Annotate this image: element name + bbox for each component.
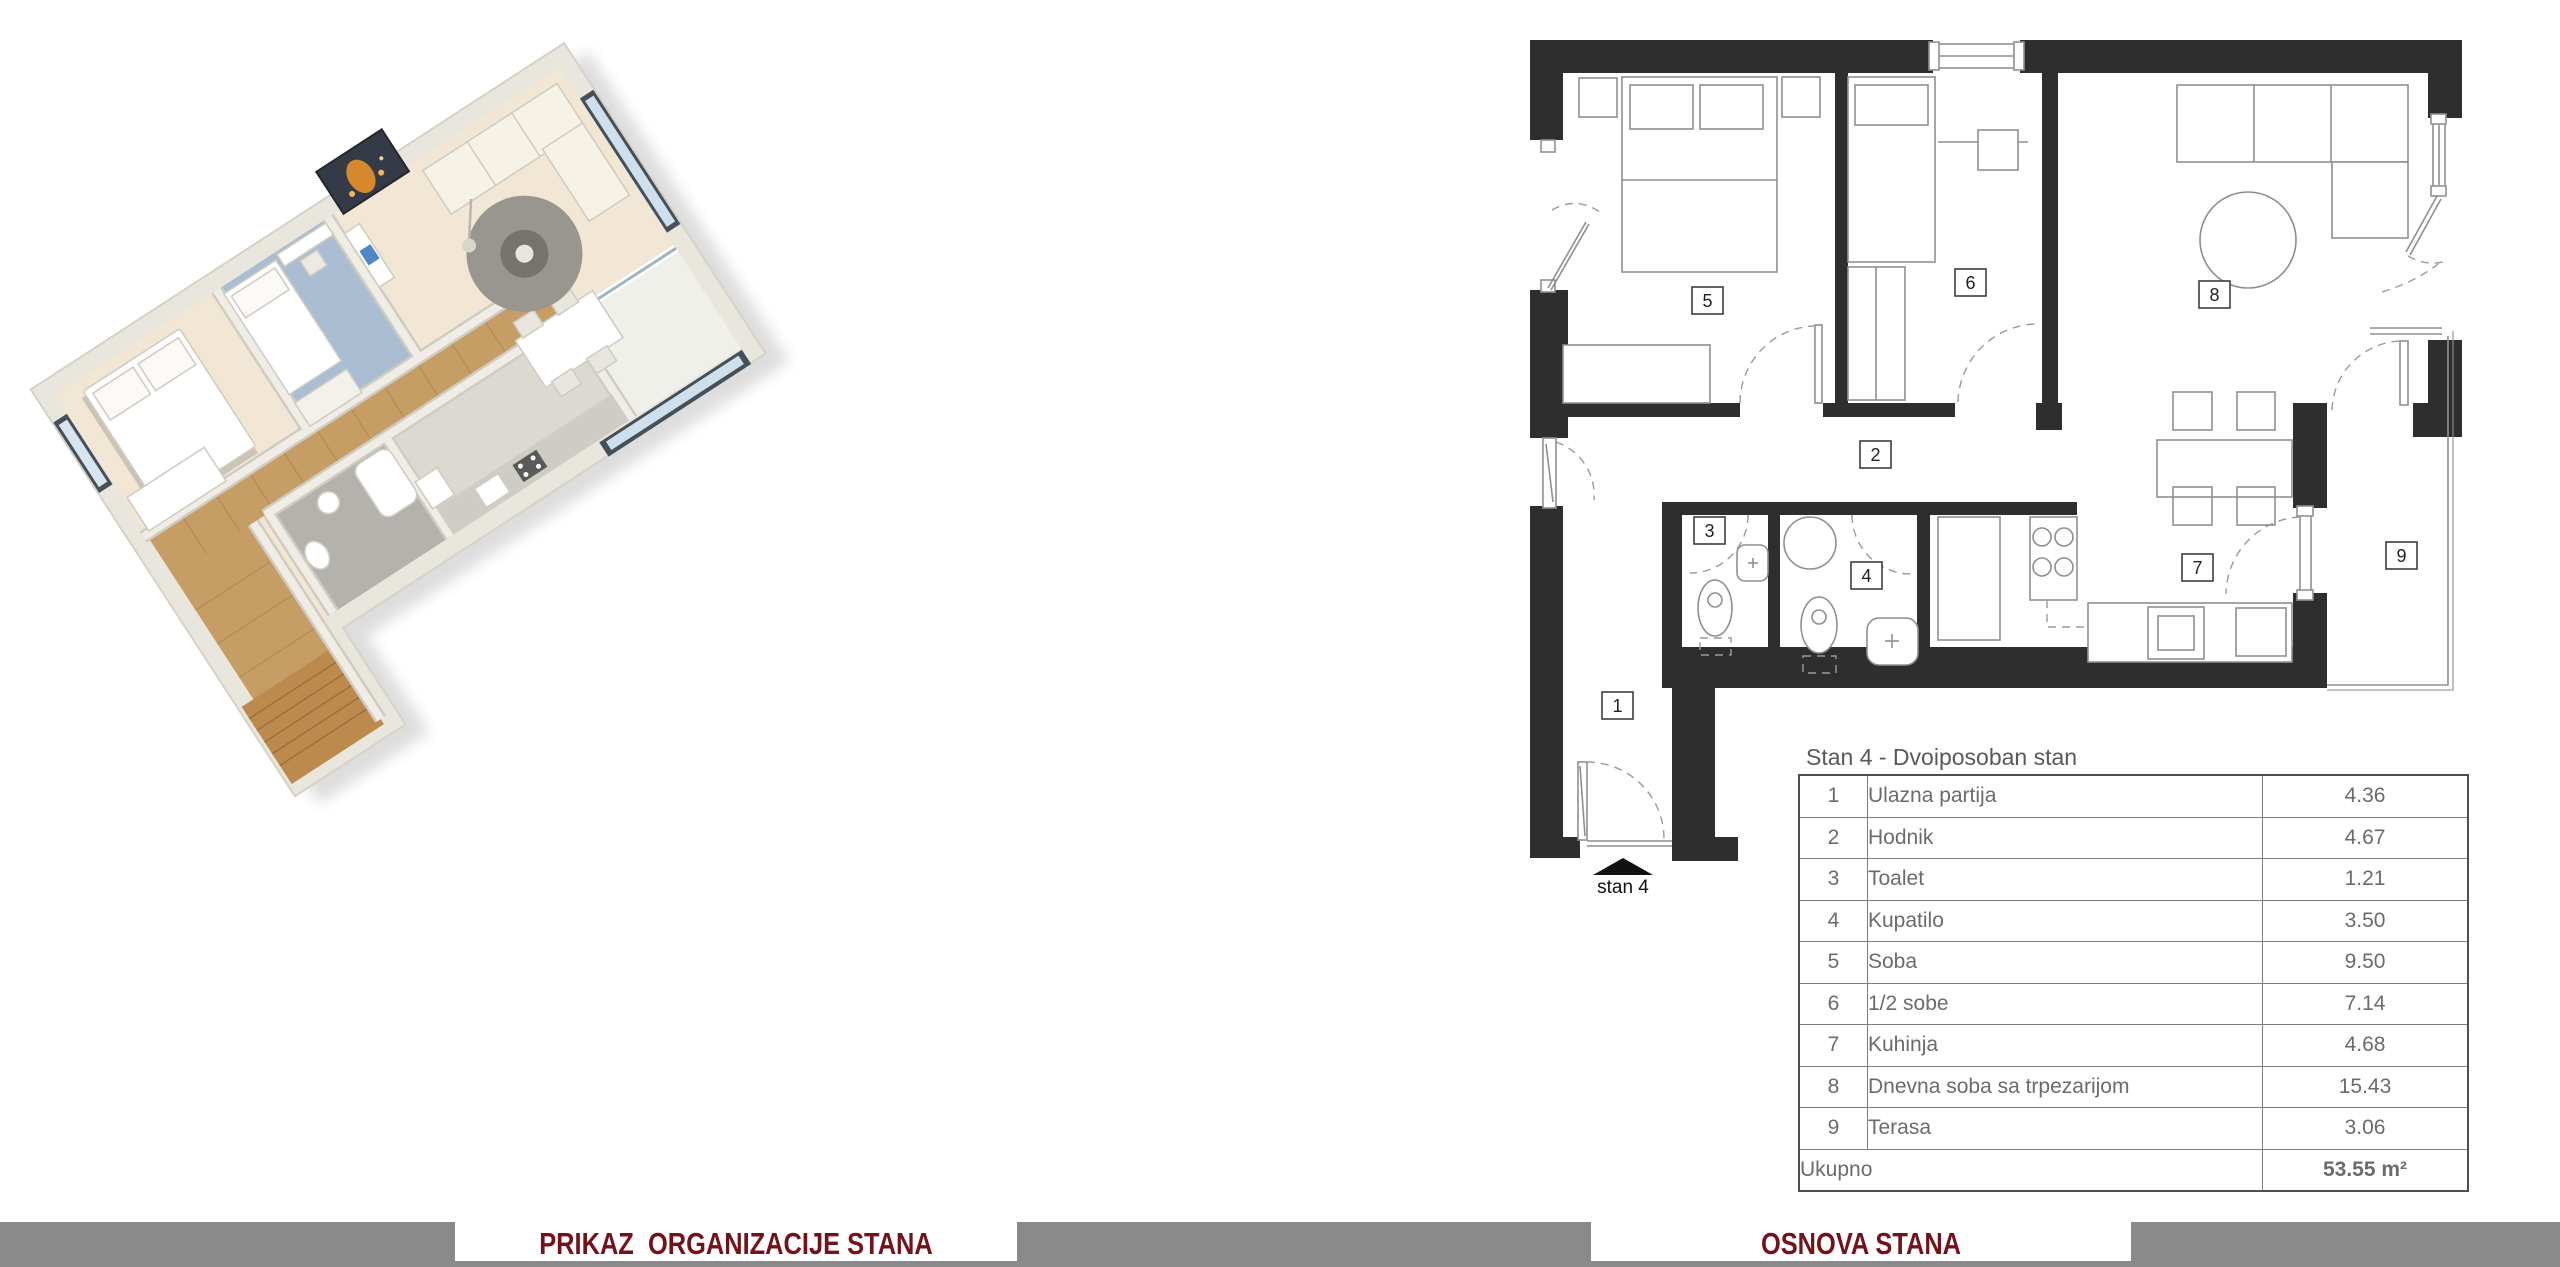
- row-num: 1: [1799, 775, 1868, 817]
- table-row: 3 Toalet 1.21: [1799, 859, 2468, 901]
- row-value: 1.21: [2263, 859, 2469, 901]
- entrance-marker: stan 4: [1593, 858, 1653, 898]
- plan-kitchen-counter: [2088, 603, 2292, 662]
- row-num: 9: [1799, 1108, 1868, 1150]
- plan-stool-room6: [1978, 130, 2018, 170]
- room-label-1: 1: [1612, 696, 1622, 716]
- row-label: Kupatilo: [1868, 900, 2263, 942]
- entrance-label: stan 4: [1597, 877, 1649, 898]
- row-num: 5: [1799, 942, 1868, 984]
- plan-sofa-living: [2177, 85, 2408, 162]
- table-total-row: Ukupno 53.55 m²: [1799, 1149, 2468, 1191]
- table-row: 7 Kuhinja 4.68: [1799, 1025, 2468, 1067]
- table-row: 4 Kupatilo 3.50: [1799, 900, 2468, 942]
- row-value: 4.36: [2263, 775, 2469, 817]
- room-label-5: 5: [1702, 291, 1712, 311]
- row-value: 4.68: [2263, 1025, 2469, 1067]
- areas-table: 1 Ulazna partija 4.36 2 Hodnik 4.67 3 To…: [1798, 774, 2469, 1192]
- row-value: 7.14: [2263, 983, 2469, 1025]
- table-title: Stan 4 - Dvoiposoban stan: [1806, 744, 2077, 771]
- plan-furniture: [1563, 77, 2408, 673]
- row-label: Toalet: [1868, 859, 2263, 901]
- room-label-3: 3: [1704, 521, 1714, 541]
- table-row: 1 Ulazna partija 4.36: [1799, 775, 2468, 817]
- footer-bar-strip: [0, 1261, 2560, 1267]
- row-value: 3.50: [2263, 900, 2469, 942]
- table-row: 5 Soba 9.50: [1799, 942, 2468, 984]
- plan-dining-table: [2157, 440, 2292, 497]
- row-value: 4.67: [2263, 817, 2469, 859]
- table-row: 9 Terasa 3.06: [1799, 1108, 2468, 1150]
- row-label: Terasa: [1868, 1108, 2263, 1150]
- row-num: 2: [1799, 817, 1868, 859]
- table-row: 8 Dnevna soba sa trpezarijom 15.43: [1799, 1066, 2468, 1108]
- plan-sink-bath: [1784, 517, 1836, 569]
- room-label-6: 6: [1965, 273, 1975, 293]
- room-label-8: 8: [2209, 285, 2219, 305]
- row-num: 4: [1799, 900, 1868, 942]
- row-num: 7: [1799, 1025, 1868, 1067]
- room-label-9: 9: [2396, 546, 2406, 566]
- plan-round-table: [2200, 192, 2296, 288]
- row-label: Dnevna soba sa trpezarijom: [1868, 1066, 2263, 1108]
- room-label-4: 4: [1861, 566, 1871, 586]
- caption-right: OSNOVA STANA: [1640, 1221, 2083, 1266]
- page: 1 2 3 4 5 6 7 8 9 stan 4 Stan 4 - Dvoipo…: [0, 0, 2560, 1267]
- room-label-7: 7: [2192, 558, 2202, 578]
- row-value: 9.50: [2263, 942, 2469, 984]
- row-label: Hodnik: [1868, 817, 2263, 859]
- row-label: 1/2 sobe: [1868, 983, 2263, 1025]
- plan-wc-toilet: [1698, 580, 1732, 636]
- plan-wc-bath: [1801, 597, 1837, 653]
- plan-sofa-room5: [1563, 345, 1710, 403]
- table-row: 6 1/2 sobe 7.14: [1799, 983, 2468, 1025]
- plan-fridge: [1938, 517, 2000, 640]
- room-label-2: 2: [1870, 445, 1880, 465]
- apartment-3d-render: [16, 12, 853, 813]
- row-value: 3.06: [2263, 1108, 2469, 1150]
- row-label: Ulazna partija: [1868, 775, 2263, 817]
- row-label: Kuhinja: [1868, 1025, 2263, 1067]
- row-label: Soba: [1868, 942, 2263, 984]
- row-value: 15.43: [2263, 1066, 2469, 1108]
- caption-left: PRIKAZ ORGANIZACIJE STANA: [506, 1221, 967, 1266]
- row-num: 8: [1799, 1066, 1868, 1108]
- row-num: 6: [1799, 983, 1868, 1025]
- entrance-arrow-icon: [1593, 858, 1653, 875]
- row-num: 3: [1799, 859, 1868, 901]
- total-value: 53.55 m²: [2263, 1149, 2469, 1191]
- plan-bed-room6: [1848, 77, 1935, 262]
- table-row: 2 Hodnik 4.67: [1799, 817, 2468, 859]
- total-label: Ukupno: [1799, 1149, 2263, 1191]
